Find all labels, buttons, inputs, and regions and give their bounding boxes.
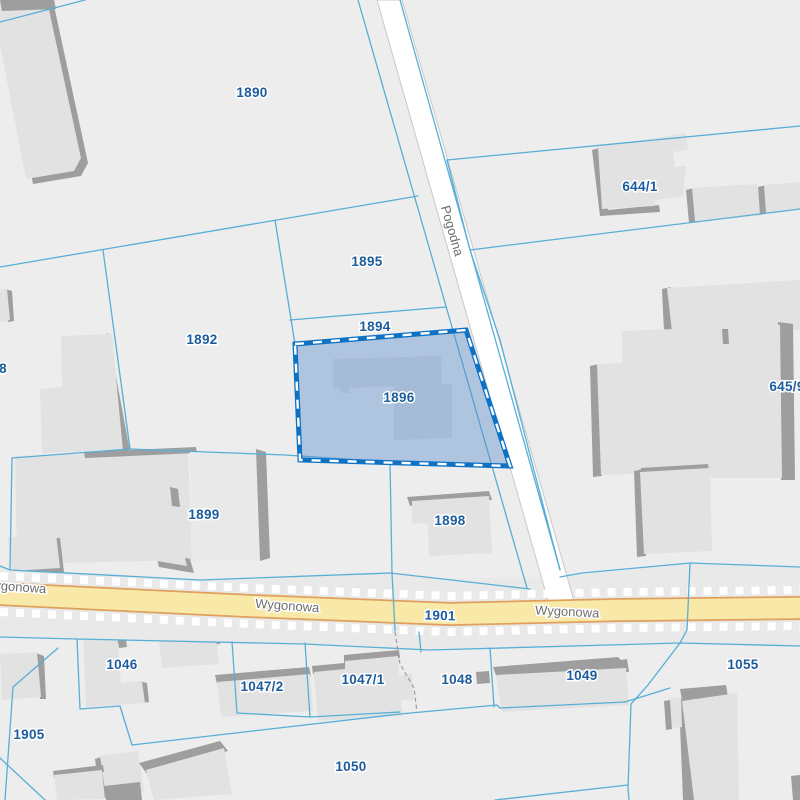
parcel-label-1049: 1049 [566, 668, 597, 683]
parcel-label-1894: 1894 [359, 319, 390, 334]
parcel-label-1046: 1046 [106, 657, 137, 672]
parcel-label-1055: 1055 [727, 657, 758, 672]
parcel-label-1047-1: 1047/1 [341, 672, 384, 687]
parcel-label-644-1: 644/1 [622, 179, 657, 194]
parcel-label-1048: 1048 [441, 672, 472, 687]
parcel-label-1896: 1896 [383, 390, 414, 405]
parcel-label-1047-2: 1047/2 [240, 679, 283, 694]
parcel-label-1901: 1901 [424, 607, 456, 623]
parcel-label-1895: 1895 [351, 254, 382, 269]
parcel-label-1890: 1890 [236, 85, 267, 100]
building [8, 447, 270, 575]
parcel-label-1050: 1050 [335, 759, 366, 774]
parcel-label-1905: 1905 [13, 727, 44, 742]
parcel-label-1892: 1892 [186, 332, 217, 347]
parcel-label-1898: 1898 [434, 513, 465, 528]
building [0, 652, 46, 700]
parcel-label-8-partial: 8 [0, 361, 7, 376]
map-canvas[interactable]: 1890 1895 1894 1892 1896 644/1 645/9 8 1… [0, 0, 800, 800]
parcel-label-1899: 1899 [188, 507, 219, 522]
building [0, 289, 14, 322]
parcel-label-645-9: 645/9 [769, 379, 800, 394]
